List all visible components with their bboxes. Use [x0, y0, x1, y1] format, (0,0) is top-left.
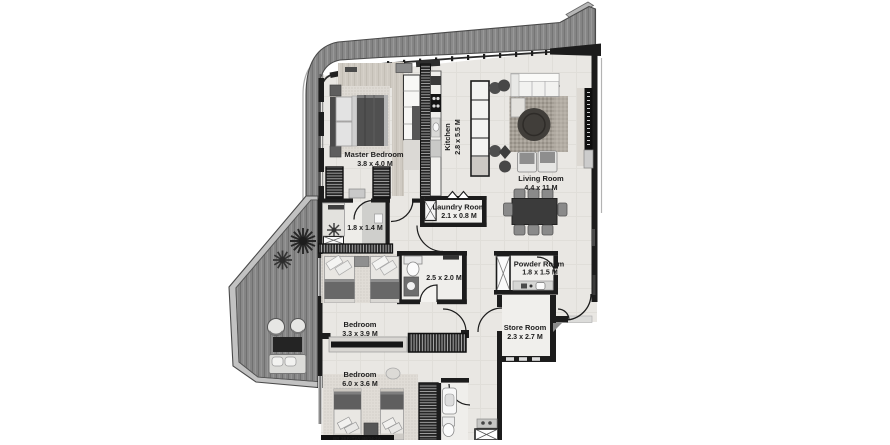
- svg-text:3.3 x 3.9 M: 3.3 x 3.9 M: [342, 330, 378, 338]
- svg-text:1.8 x 1.5 M: 1.8 x 1.5 M: [522, 269, 558, 277]
- svg-text:BR 3BR-T2A 3B/04-2A: BR 3BR-T2A 3B/04-2A: [333, 436, 382, 440]
- svg-text:6.0 x 3.6 M: 6.0 x 3.6 M: [342, 380, 378, 388]
- svg-text:Kitchen: Kitchen: [443, 123, 452, 151]
- svg-text:2.5 x 2.0 M: 2.5 x 2.0 M: [426, 274, 462, 282]
- svg-text:Laundry Room: Laundry Room: [433, 203, 486, 212]
- svg-text:Bedroom: Bedroom: [344, 370, 377, 379]
- svg-text:2.8 x 5.5 M: 2.8 x 5.5 M: [454, 119, 462, 155]
- svg-text:Powder Room: Powder Room: [514, 260, 565, 269]
- svg-text:4.4 x 11 M: 4.4 x 11 M: [524, 184, 557, 192]
- svg-text:Store Room: Store Room: [504, 323, 547, 332]
- svg-text:Bedroom: Bedroom: [344, 320, 377, 329]
- svg-text:1.8 x 1.4 M: 1.8 x 1.4 M: [347, 224, 383, 232]
- svg-text:2.1 x 0.8 M: 2.1 x 0.8 M: [441, 212, 477, 220]
- svg-text:Living Room: Living Room: [518, 174, 564, 183]
- svg-text:2.3 x 2.7 M: 2.3 x 2.7 M: [507, 333, 543, 341]
- svg-text:3.8 x 4.0 M: 3.8 x 4.0 M: [357, 160, 393, 168]
- svg-text:Master Bedroom: Master Bedroom: [344, 150, 404, 159]
